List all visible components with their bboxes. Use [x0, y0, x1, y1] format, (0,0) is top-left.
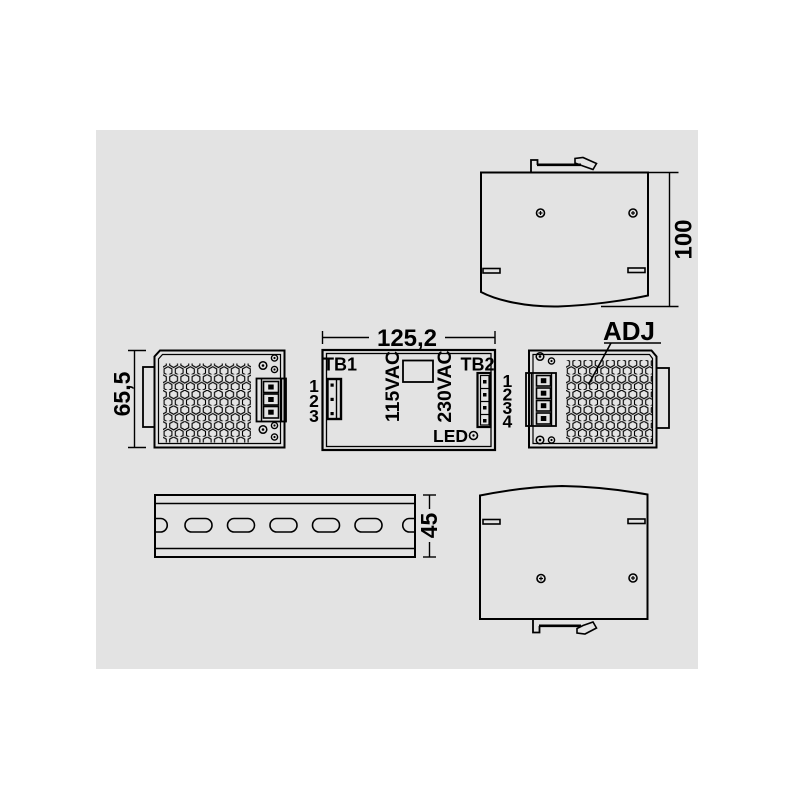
dimension-side-height-label: 65,5	[109, 371, 135, 416]
adj-label: ADJ	[603, 316, 655, 346]
side-right-vent-pattern	[566, 360, 652, 442]
tb2-pin-4: 4	[503, 412, 513, 432]
dimension-height-label: 100	[671, 219, 698, 259]
led-label: LED	[433, 426, 468, 446]
dimension-width-label: 125,2	[377, 325, 437, 352]
tb1-pin-3: 3	[309, 406, 319, 426]
tb2-label: TB2	[460, 355, 494, 375]
tb1-label: TB1	[323, 355, 357, 375]
voltage-230-label: 230VAC	[434, 350, 456, 422]
drawing-page: 100 65,5	[0, 0, 800, 800]
dimension-rail-height-label: 45	[416, 513, 442, 539]
technical-drawing-canvas: 100 65,5	[0, 0, 800, 800]
side-left-vent-pattern	[163, 364, 251, 443]
voltage-115-label: 115VAC	[382, 351, 404, 422]
